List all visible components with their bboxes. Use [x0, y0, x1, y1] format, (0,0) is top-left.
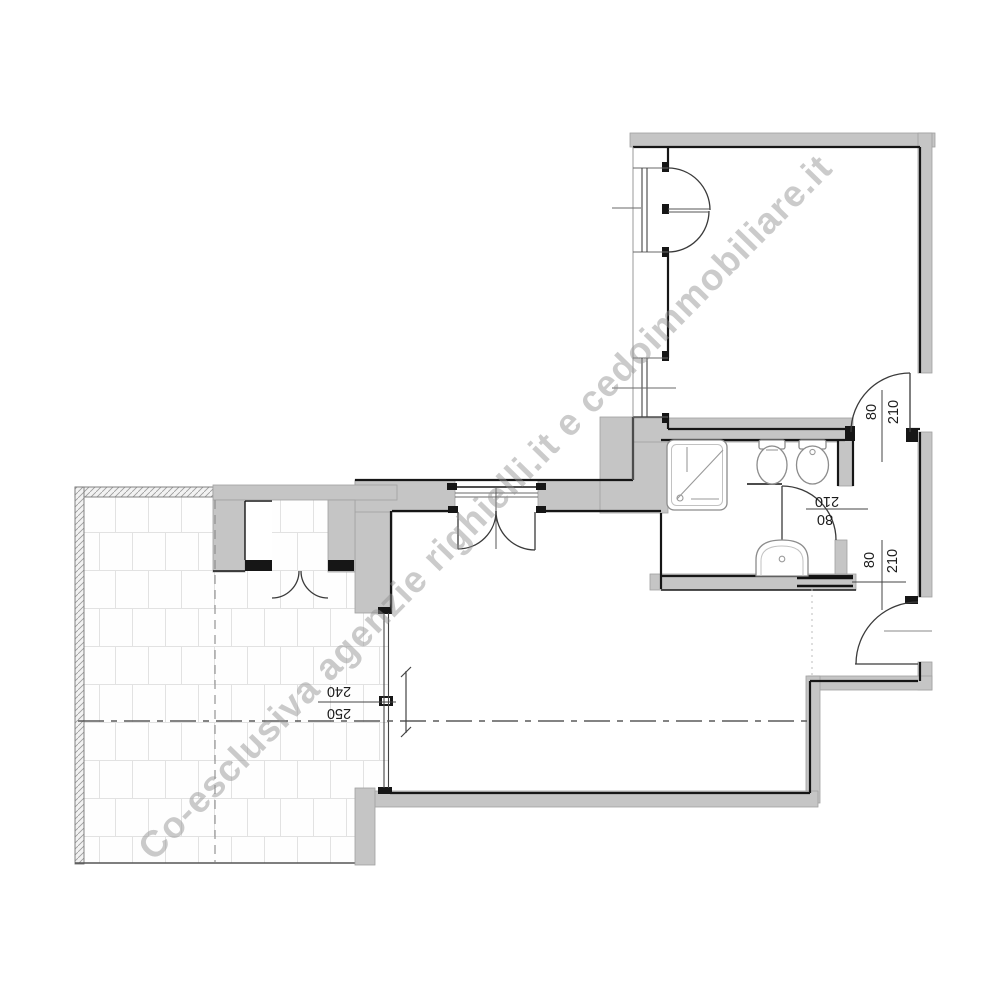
- bidet: [757, 440, 787, 484]
- toilet: [797, 440, 829, 484]
- bedroom-door-height-label: 210: [886, 400, 902, 424]
- wall-terrace-left-stub: [213, 500, 245, 572]
- dimension-bedroom-door: 80 210: [864, 390, 902, 462]
- shower: [667, 440, 727, 510]
- floor-plan-svg: 80 210 210 80 80 210 240 250 Co-esclusiv…: [0, 0, 1000, 1000]
- terrace-door-niche: [245, 500, 272, 560]
- sink: [756, 540, 808, 576]
- bedroom-window-upper: [612, 168, 710, 252]
- bedroom-door-width-label: 80: [864, 404, 880, 420]
- casement-arc-top: [668, 168, 710, 210]
- bathroom-door-width-label: 80: [817, 511, 833, 527]
- living-window-width-label: 250: [327, 705, 351, 721]
- entrance-door-width-label: 80: [862, 552, 878, 568]
- wall-bathroom-east-upper: [838, 440, 853, 486]
- dimension-extent-marker: [401, 667, 411, 737]
- wall-step-vertical: [806, 676, 820, 803]
- floor-plan-screenshot: 80 210 210 80 80 210 240 250 Co-esclusiv…: [0, 0, 1000, 1000]
- wall-bedroom-top: [630, 133, 935, 147]
- wall-terrace-right-lower: [355, 788, 375, 865]
- bathroom-door-height-label: 210: [815, 493, 839, 509]
- entrance-door: [855, 602, 932, 664]
- casement-arc-bottom: [668, 211, 709, 252]
- wall-terrace-north-band: [213, 485, 397, 500]
- entrance-door-arc: [856, 602, 918, 664]
- wall-step-horizontal: [808, 676, 932, 690]
- dimension-entrance-door: 80 210: [852, 540, 906, 610]
- entrance-door-height-label: 210: [885, 549, 901, 573]
- dimension-bathroom-door: 210 80: [806, 493, 868, 527]
